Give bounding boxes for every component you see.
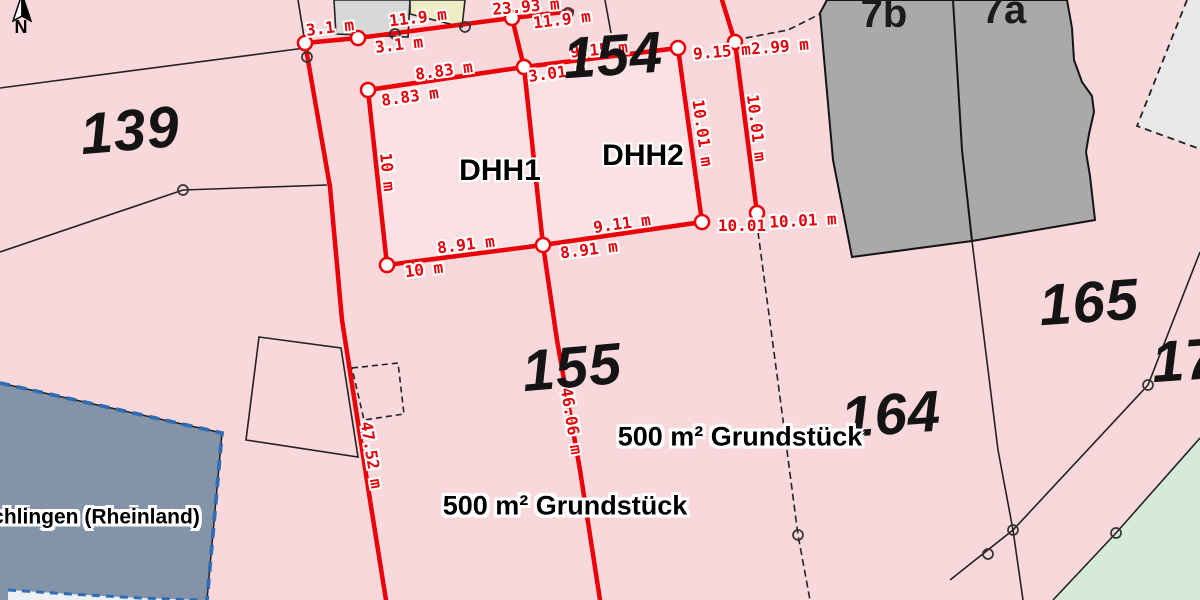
parcel-number: 155 (520, 335, 624, 401)
measurement-label: 10 m (377, 152, 397, 192)
building-7b-7a (820, 0, 1095, 257)
measurement-label: 10.01 (718, 218, 766, 234)
north-label: N (15, 18, 28, 36)
house-number: 7b (861, 0, 908, 34)
measurement-label: 10.01 m (769, 211, 837, 231)
area-label: 500 m² Grundstück (443, 493, 688, 520)
cadastral-map-viewport[interactable]: 3.1 m3.1 m11.9 m23.93 m11.9 m8.83 m8.83 … (0, 0, 1200, 600)
unit-label: DHH1 (459, 156, 541, 186)
unit-label: DHH2 (602, 141, 684, 171)
municipality-label: chlingen (Rheinland) (0, 507, 200, 528)
house-number: 7a (982, 0, 1027, 30)
measurement-label: 10 m (404, 260, 444, 281)
area-label: 500 m² Grundstück (618, 424, 863, 451)
parcel-number: 165 (1037, 271, 1141, 336)
parcel-number: 139 (78, 98, 182, 164)
parcel-number: 17 (1150, 330, 1200, 392)
parcel-number: 154 (561, 24, 665, 89)
